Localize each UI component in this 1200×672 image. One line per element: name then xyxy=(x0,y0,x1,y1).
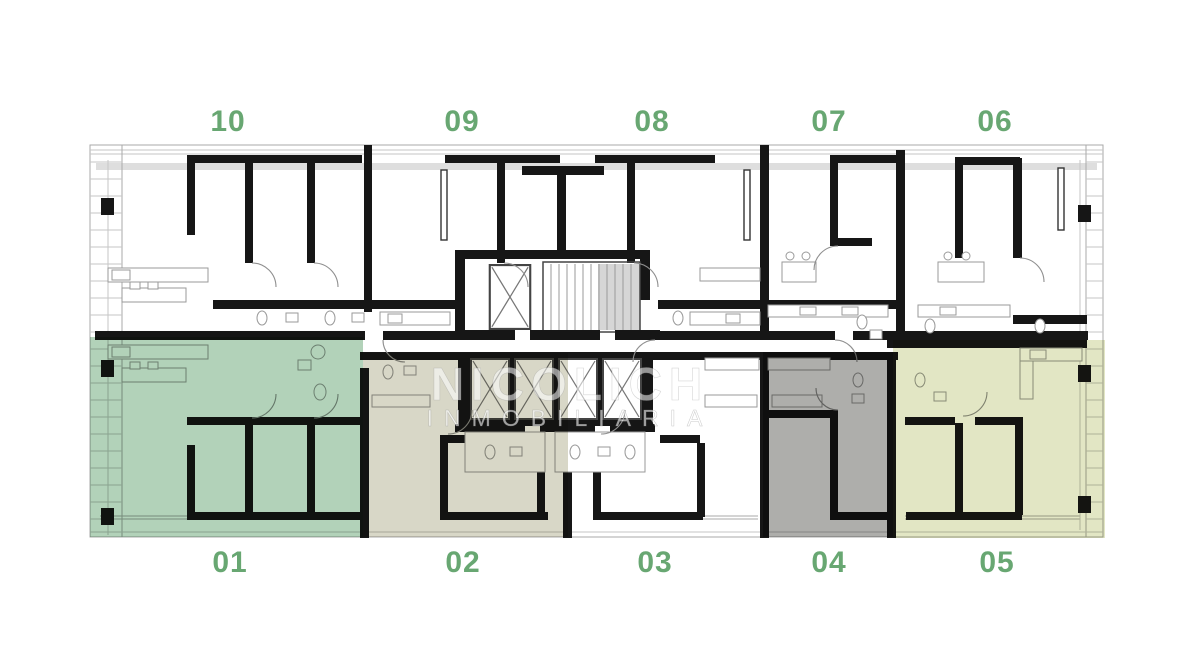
watermark-line1: NICOLICH xyxy=(431,358,709,410)
unit-label-top-10[interactable]: 10 xyxy=(210,105,245,138)
unit-label-top-07[interactable]: 07 xyxy=(811,105,846,138)
floor-plan-page: NICOLICH INMOBILIARIA 10 09 08 07 06 01 … xyxy=(0,0,1200,672)
overlay-unit-05[interactable] xyxy=(893,340,1105,538)
unit-label-bottom-01[interactable]: 01 xyxy=(212,546,247,579)
overlay-unit-04[interactable] xyxy=(763,352,893,537)
unit-label-bottom-02[interactable]: 02 xyxy=(445,546,480,579)
unit-label-bottom-05[interactable]: 05 xyxy=(979,546,1014,579)
stair-landing xyxy=(598,264,640,330)
unit-label-top-06[interactable]: 06 xyxy=(977,105,1012,138)
overlay-unit-01[interactable] xyxy=(90,337,363,537)
unit-label-bottom-03[interactable]: 03 xyxy=(637,546,672,579)
floor-plan: NICOLICH INMOBILIARIA 10 09 08 07 06 01 … xyxy=(0,0,1200,672)
watermark-line2: INMOBILIARIA xyxy=(427,405,714,431)
unit-label-top-09[interactable]: 09 xyxy=(444,105,479,138)
window-glazing xyxy=(441,168,1064,240)
unit-label-bottom-04[interactable]: 04 xyxy=(811,546,846,579)
unit-label-top-08[interactable]: 08 xyxy=(634,105,669,138)
watermark: NICOLICH INMOBILIARIA xyxy=(427,358,714,431)
